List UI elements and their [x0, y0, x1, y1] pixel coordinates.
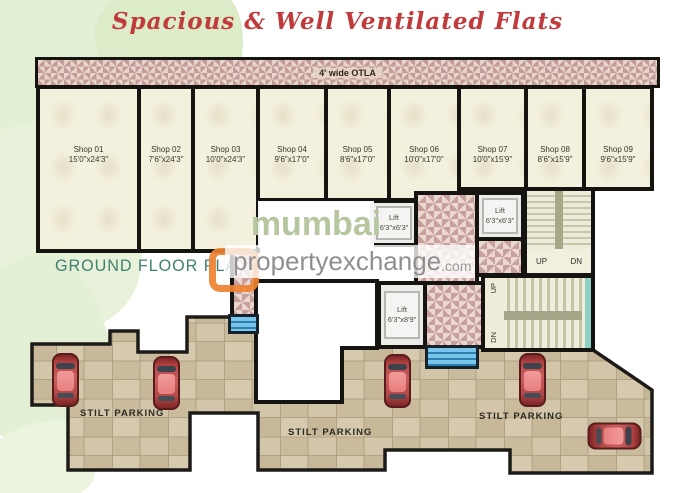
- car-windshield: [56, 363, 74, 370]
- lift-3-label: Lift6'3"x8'9": [384, 291, 421, 339]
- page-title: Spacious & Well Ventilated Flats: [0, 8, 675, 35]
- shop-label: Shop 058'6"x17'0": [328, 145, 387, 166]
- courtyard-upper: [254, 279, 379, 350]
- shop-label: Shop 099'6"x15'9": [586, 145, 650, 166]
- lift-1-label: Lift6'3"x6'3": [376, 206, 411, 240]
- car-rear-window: [389, 394, 406, 399]
- stilt-parking-label: STILT PARKING: [479, 411, 563, 422]
- shop-unit: Shop 058'6"x17'0": [324, 85, 391, 202]
- shop-unit: Shop 0710'0"x15'9": [457, 85, 528, 191]
- passage-below-lift2: [475, 237, 525, 277]
- stilt-parking-label: STILT PARKING: [288, 427, 372, 438]
- shop-unit: Shop 088'6"x15'9": [524, 85, 586, 191]
- dn-label: DN: [570, 257, 582, 266]
- car-rear-window: [57, 393, 74, 398]
- stilt-parking-label: STILT PARKING: [80, 408, 164, 419]
- shop-label: Shop 0610'0"x17'0": [391, 145, 457, 166]
- watermark-line1: mumbai: [251, 205, 381, 244]
- car-windshield: [388, 364, 406, 371]
- shop-unit: Shop 0310'0"x24'3": [191, 85, 260, 253]
- car-windshield: [523, 363, 541, 370]
- watermark-brand: mumbai: [258, 201, 374, 248]
- stair-divider: [555, 191, 563, 249]
- lift-2: Lift6'3"x6'3": [475, 191, 525, 241]
- shop-label: Shop 0310'0"x24'3": [195, 145, 256, 166]
- shop-door-gap: [232, 89, 246, 93]
- car-rear-window: [597, 427, 602, 444]
- courtyard-lower: [254, 348, 344, 404]
- shop-label: Shop 088'6"x15'9": [528, 145, 582, 166]
- car-roof: [524, 371, 541, 391]
- shop-label: Shop 0115'0"x24'3": [40, 145, 137, 166]
- courtyard-wall: [340, 346, 379, 350]
- shop-door-gap: [113, 89, 127, 93]
- shop-unit: Shop 049'6"x17'0": [256, 85, 328, 202]
- car-windshield: [626, 427, 633, 445]
- shop-door-gap: [300, 89, 314, 93]
- car: [153, 356, 180, 410]
- shop-door-gap: [500, 89, 514, 93]
- stair-direction-strip: UP DN: [485, 278, 502, 348]
- staircase-lower: UP DN: [481, 274, 595, 352]
- entrance-steps-left: [228, 314, 259, 334]
- shop-unit: Shop 0115'0"x24'3": [36, 85, 141, 253]
- car: [519, 353, 546, 407]
- shop-label: Shop 049'6"x17'0": [260, 145, 324, 166]
- car-roof: [604, 427, 624, 444]
- shop-door-gap: [363, 89, 377, 93]
- otla-label: 4' wide OTLA: [313, 68, 382, 78]
- car: [52, 353, 79, 407]
- car-roof: [389, 372, 406, 392]
- passage-right-of-lift3: [423, 281, 485, 349]
- shop-unit: Shop 099'6"x15'9": [582, 85, 654, 191]
- shop-unit: Shop 027'6"x24'3": [137, 85, 195, 253]
- watermark-domain: propertyexchange .com: [225, 245, 475, 278]
- car-rear-window: [524, 393, 541, 398]
- watermark-com: .com: [441, 258, 471, 274]
- up-label: UP: [489, 283, 498, 293]
- car: [588, 423, 642, 450]
- staircase-upper: UP DN: [523, 187, 595, 277]
- stair-treads: [502, 278, 585, 348]
- stair-treads: [527, 191, 591, 249]
- otla-strip: 4' wide OTLA: [35, 57, 660, 88]
- car-roof: [57, 371, 74, 391]
- shop-door-gap: [558, 89, 572, 93]
- lift-2-label: Lift6'3"x6'3": [482, 198, 519, 233]
- floor-plan-canvas: Spacious & Well Ventilated Flats GROUND …: [0, 0, 675, 493]
- shop-unit: Shop 0610'0"x17'0": [387, 85, 461, 202]
- shop-door-gap: [626, 89, 640, 93]
- shop-door-gap: [433, 89, 447, 93]
- car: [384, 354, 411, 408]
- car-rear-window: [158, 396, 175, 401]
- shop-label: Shop 027'6"x24'3": [141, 145, 191, 166]
- up-label: UP: [536, 257, 547, 266]
- dn-label: DN: [489, 332, 498, 343]
- shop-door-gap: [167, 89, 181, 93]
- stair-landing: UP DN: [527, 249, 591, 273]
- car-windshield: [157, 366, 175, 373]
- lift-3: Lift6'3"x8'9": [377, 281, 427, 349]
- car-roof: [158, 374, 175, 394]
- shop-label: Shop 0710'0"x15'9": [461, 145, 524, 166]
- stair-landing-bar: [504, 311, 582, 320]
- entrance-steps-center: [425, 345, 479, 369]
- stair-glass-strip: [585, 278, 591, 348]
- watermark-line2: propertyexchange: [233, 246, 441, 277]
